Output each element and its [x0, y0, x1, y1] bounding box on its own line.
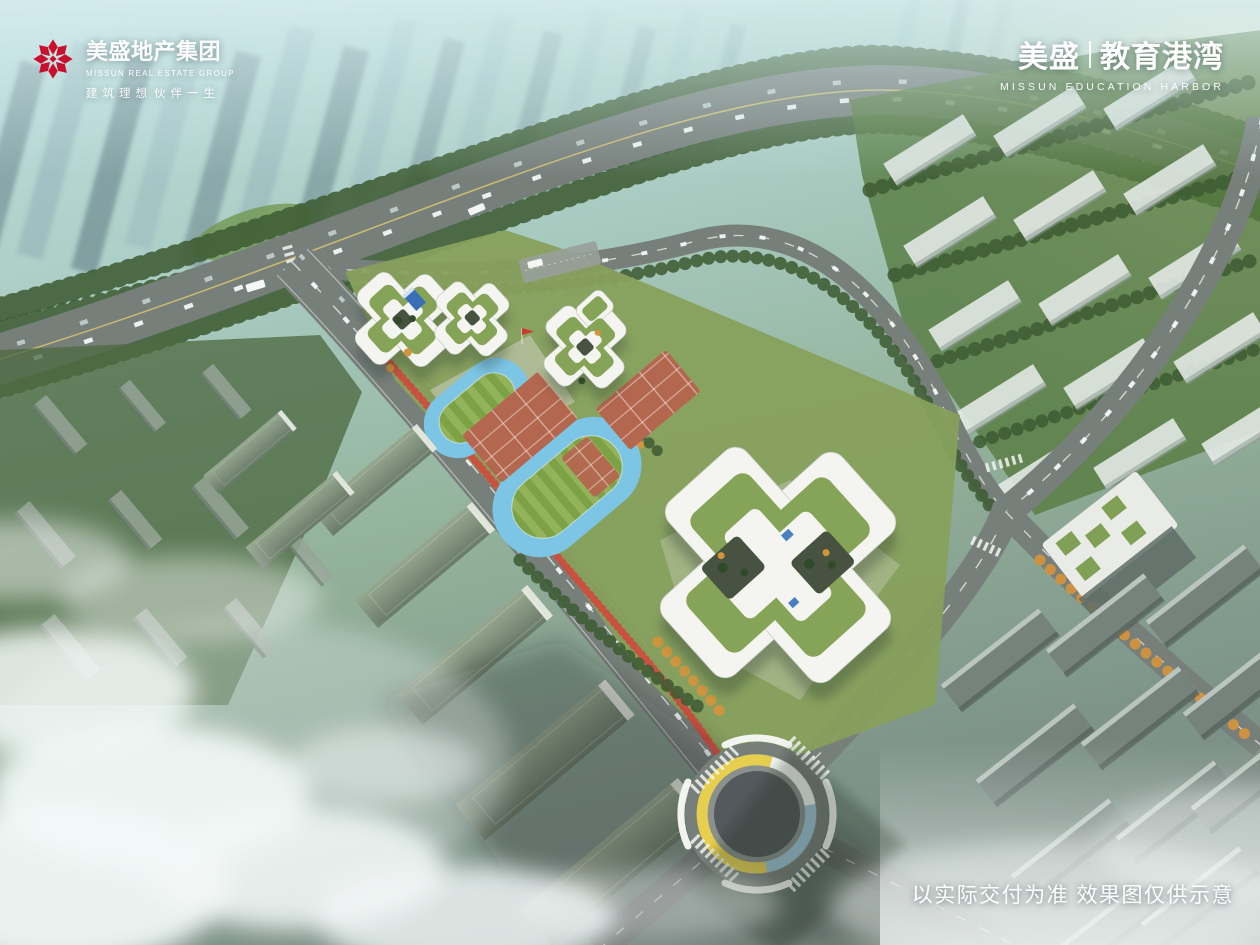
- project-name-en: MISSUN EDUCATION HARBOR: [1000, 81, 1224, 93]
- project-brand-cn: 美盛: [1018, 32, 1080, 76]
- developer-logo: 美盛地产集团 MISSUN REAL ESTATE GROUP 建筑理想 伙伴一…: [30, 34, 220, 101]
- project-logo: 美盛 教育港湾 MISSUN EDUCATION HARBOR: [1000, 32, 1224, 93]
- developer-slogan: 建筑理想 伙伴一生: [86, 85, 220, 101]
- flower-knot-emblem-icon: [30, 36, 76, 82]
- logo-divider: [1089, 41, 1091, 68]
- developer-name-cn: 美盛地产集团: [86, 34, 220, 66]
- project-name-cn: 教育港湾: [1100, 32, 1224, 76]
- disclaimer-text: 以实际交付为准 效果图仅供示意: [912, 879, 1234, 909]
- rendered-cityscape: [0, 0, 1260, 945]
- developer-name-en: MISSUN REAL ESTATE GROUP: [86, 69, 220, 78]
- aerial-rendering: 美盛地产集团 MISSUN REAL ESTATE GROUP 建筑理想 伙伴一…: [0, 0, 1260, 945]
